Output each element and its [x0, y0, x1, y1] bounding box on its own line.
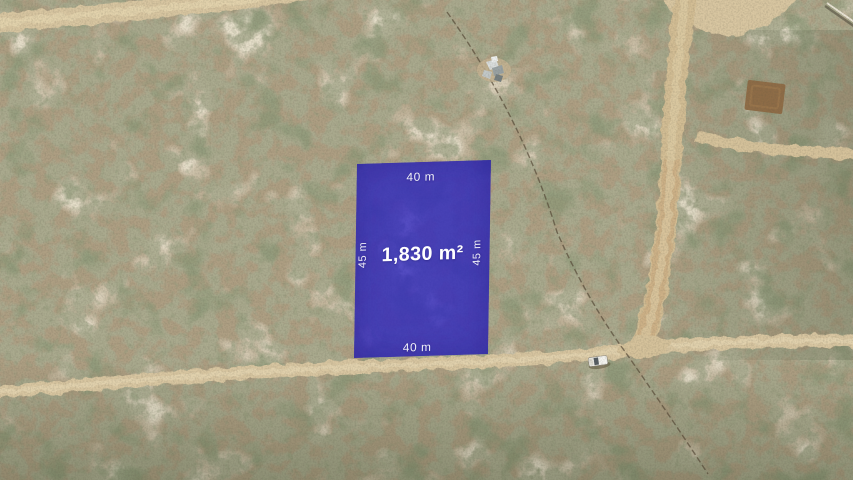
lot-boundary-overlay: 40 m 45 m 1,830 m² 45 m 40 m	[354, 160, 491, 358]
lot-left-depth-label: 45 m	[358, 242, 369, 269]
aerial-photo: 40 m 45 m 1,830 m² 45 m 40 m	[0, 0, 853, 480]
lot-area-label: 1,830 m²	[381, 243, 463, 265]
lot-bottom-width-label: 40 m	[403, 341, 432, 354]
lot-right-depth-label: 45 m	[472, 239, 483, 266]
lot-top-width-label: 40 m	[406, 170, 435, 183]
